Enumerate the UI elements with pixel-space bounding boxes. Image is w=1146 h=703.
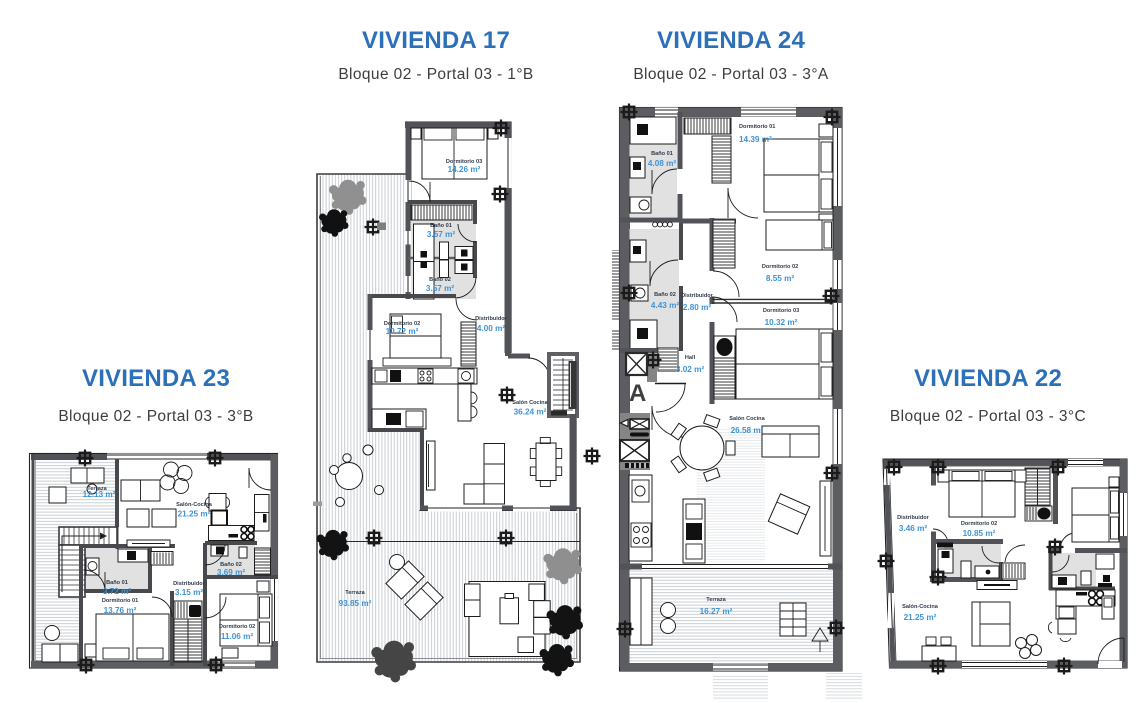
svg-text:21.25 m²: 21.25 m² bbox=[904, 613, 937, 622]
svg-text:14.39 m²: 14.39 m² bbox=[739, 135, 772, 144]
svg-text:Terraza: Terraza bbox=[345, 590, 365, 596]
svg-text:VIVIENDA 23: VIVIENDA 23 bbox=[82, 365, 230, 392]
svg-text:3.72 m²: 3.72 m² bbox=[103, 587, 131, 596]
svg-text:Distribuidor: Distribuidor bbox=[681, 293, 714, 299]
svg-text:Dormitorio 03: Dormitorio 03 bbox=[763, 308, 799, 314]
svg-text:3.57 m²: 3.57 m² bbox=[427, 230, 455, 239]
svg-text:4.43 m²: 4.43 m² bbox=[651, 301, 679, 310]
svg-text:Salón Cocina: Salón Cocina bbox=[512, 400, 548, 406]
svg-text:4.08 m²: 4.08 m² bbox=[648, 159, 676, 168]
svg-text:Distribuidor: Distribuidor bbox=[897, 515, 930, 521]
svg-text:3.46 m²: 3.46 m² bbox=[899, 524, 927, 533]
svg-text:Distribuidor: Distribuidor bbox=[475, 316, 508, 322]
svg-text:12.13 m²: 12.13 m² bbox=[83, 490, 116, 499]
svg-text:Salón Cocina: Salón Cocina bbox=[729, 416, 765, 422]
svg-text:36.24 m²: 36.24 m² bbox=[514, 408, 547, 417]
svg-text:Terraza: Terraza bbox=[706, 597, 726, 603]
svg-text:13.76 m²: 13.76 m² bbox=[104, 606, 137, 615]
svg-text:Dormitorio 01: Dormitorio 01 bbox=[739, 124, 775, 130]
svg-text:Bloque 02 - Portal 03 - 3°A: Bloque 02 - Portal 03 - 3°A bbox=[633, 66, 829, 83]
svg-text:10.32 m²: 10.32 m² bbox=[765, 318, 798, 327]
svg-text:21.25 m²: 21.25 m² bbox=[178, 510, 211, 519]
svg-text:8.55 m²: 8.55 m² bbox=[766, 274, 794, 283]
svg-text:11.06 m²: 11.06 m² bbox=[221, 632, 254, 641]
svg-text:3.02 m²: 3.02 m² bbox=[676, 365, 704, 374]
svg-text:3.15 m²: 3.15 m² bbox=[175, 588, 203, 597]
svg-text:3.69 m²: 3.69 m² bbox=[217, 568, 245, 577]
svg-text:VIVIENDA 24: VIVIENDA 24 bbox=[657, 27, 805, 54]
svg-text:3.57 m²: 3.57 m² bbox=[426, 284, 454, 293]
svg-text:Hall: Hall bbox=[685, 355, 696, 361]
svg-text:Dormitorio 02: Dormitorio 02 bbox=[219, 624, 255, 630]
svg-text:Dormitorio 02: Dormitorio 02 bbox=[961, 521, 997, 527]
svg-text:VIVIENDA 17: VIVIENDA 17 bbox=[362, 27, 510, 54]
svg-text:10.85 m²: 10.85 m² bbox=[963, 529, 996, 538]
svg-text:Dormitorio 01: Dormitorio 01 bbox=[102, 598, 138, 604]
svg-text:Bloque 02 - Portal 03 - 1°B: Bloque 02 - Portal 03 - 1°B bbox=[338, 66, 533, 83]
svg-text:Salón-Cocina: Salón-Cocina bbox=[176, 502, 213, 508]
svg-text:Baño 01: Baño 01 bbox=[651, 151, 673, 157]
svg-text:Salón-Cocina: Salón-Cocina bbox=[902, 604, 939, 610]
svg-text:Baño 02: Baño 02 bbox=[654, 292, 676, 298]
svg-text:4.00 m²: 4.00 m² bbox=[477, 324, 505, 333]
svg-text:Bloque 02 - Portal 03 - 3°B: Bloque 02 - Portal 03 - 3°B bbox=[58, 408, 253, 425]
svg-text:93.85 m²: 93.85 m² bbox=[339, 599, 372, 608]
svg-text:A: A bbox=[629, 380, 646, 407]
svg-text:26.58 m²: 26.58 m² bbox=[731, 426, 764, 435]
svg-text:Bloque 02 - Portal 03 - 3°C: Bloque 02 - Portal 03 - 3°C bbox=[890, 408, 1086, 425]
svg-text:Baño 01: Baño 01 bbox=[430, 223, 452, 229]
svg-text:2.80 m²: 2.80 m² bbox=[683, 303, 711, 312]
svg-text:VIVIENDA 22: VIVIENDA 22 bbox=[914, 365, 1062, 392]
svg-text:10.72 m²: 10.72 m² bbox=[386, 327, 419, 336]
svg-text:Dormitorio 02: Dormitorio 02 bbox=[762, 264, 798, 270]
svg-text:14.26 m²: 14.26 m² bbox=[448, 165, 481, 174]
svg-text:Baño 02: Baño 02 bbox=[429, 277, 451, 283]
svg-text:Baño 01: Baño 01 bbox=[106, 580, 128, 586]
svg-text:16.27 m²: 16.27 m² bbox=[700, 607, 733, 616]
svg-text:Distribuidor: Distribuidor bbox=[173, 581, 206, 587]
